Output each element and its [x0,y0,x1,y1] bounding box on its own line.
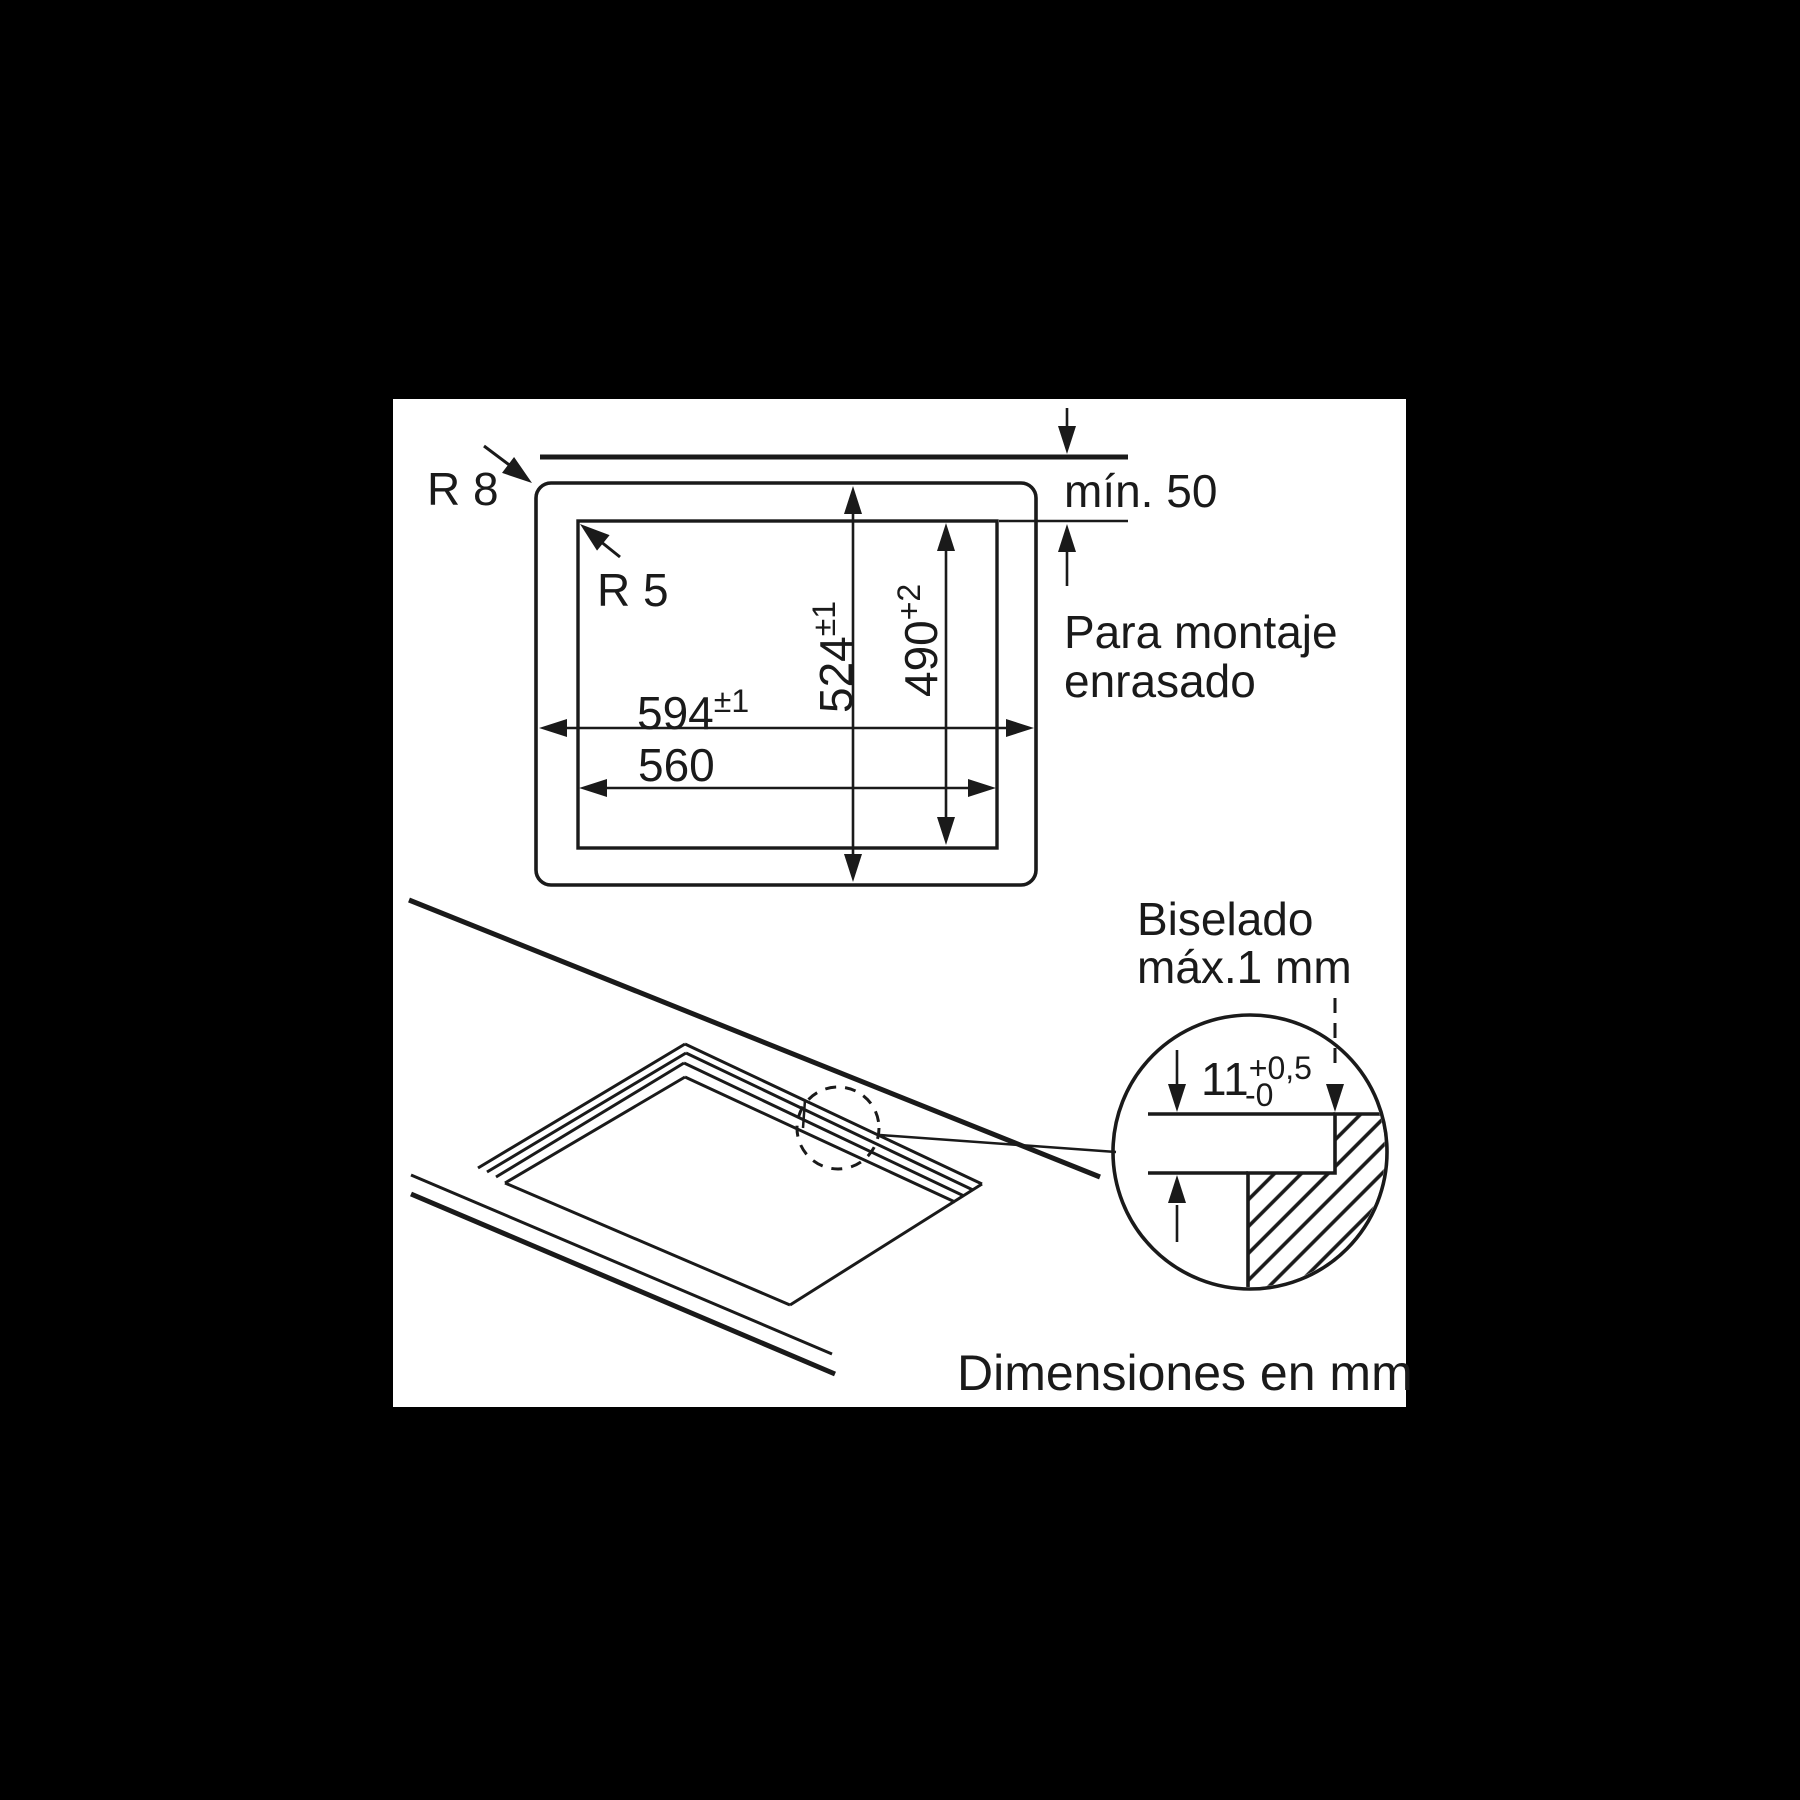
hob-depth-value: 524 [810,636,862,713]
label-cutout-width: 560 [638,739,715,791]
hob-depth-tol: ±1 [806,601,842,636]
units-note: Dimensiones en mm [957,1345,1413,1401]
label-r5: R 5 [597,564,669,616]
recess-depth-value: 11 [1201,1053,1249,1105]
label-flush-mounting-line2: enrasado [1064,655,1256,707]
label-r8: R 8 [427,463,499,515]
cutout-depth-tol: +2 [891,584,927,620]
label-flush-mounting-line1: Para montaje [1064,606,1338,658]
recess-tol-minus: -0 [1245,1077,1273,1113]
label-min50: mín. 50 [1064,465,1217,517]
cutout-depth-value: 490 [895,620,947,697]
hob-width-value: 594 [637,687,714,739]
installation-diagram: R 8 R 5 mín. 50 594±1 560 524±1 490+2 Pa… [0,0,1800,1800]
hob-width-tol: ±1 [714,683,749,719]
page-background: R 8 R 5 mín. 50 594±1 560 524±1 490+2 Pa… [0,0,1800,1800]
label-bevel-line1: Biselado [1137,893,1313,945]
label-bevel-line2: máx.1 mm [1137,941,1352,993]
